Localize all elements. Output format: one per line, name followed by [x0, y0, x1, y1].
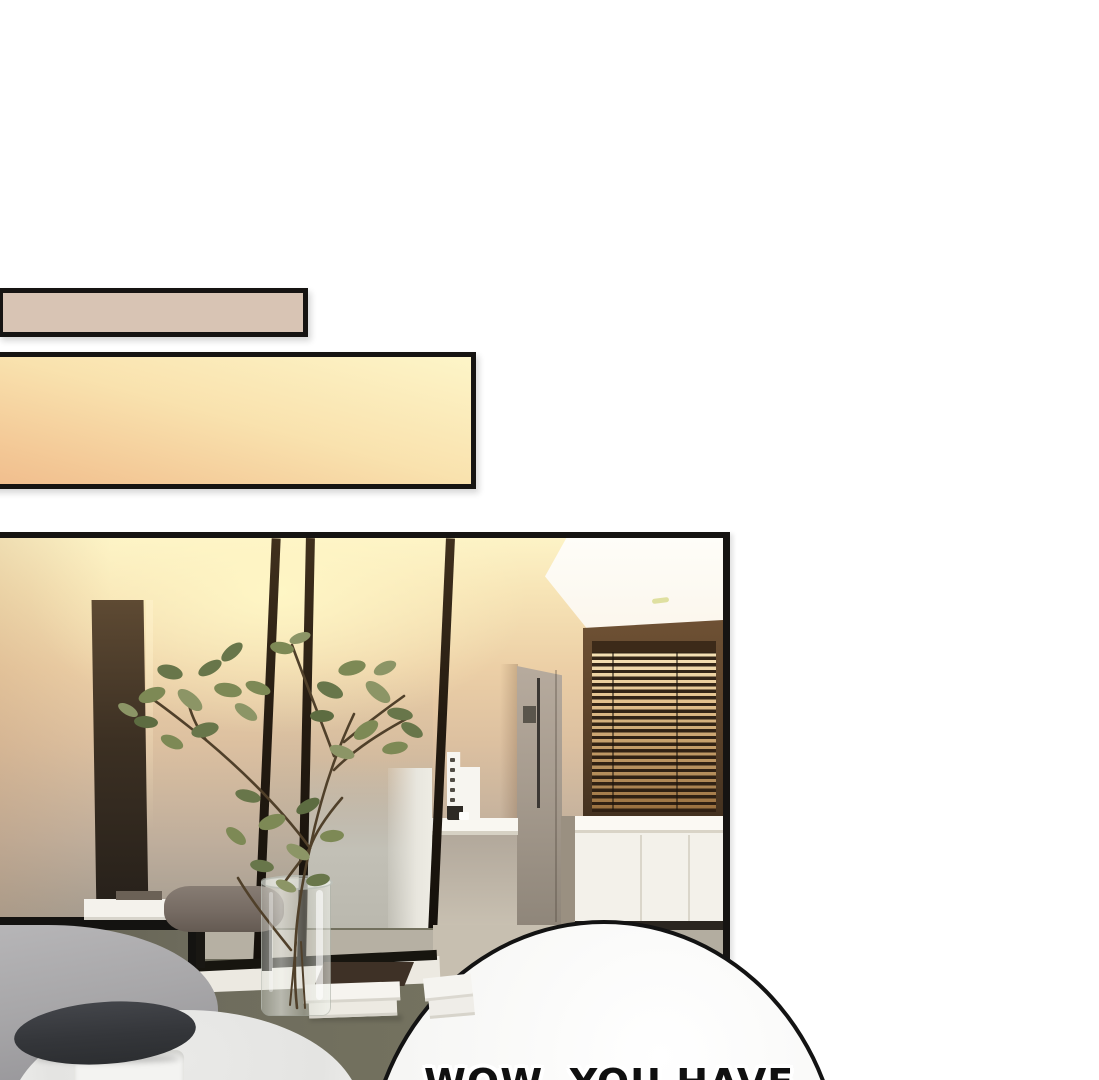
coffee-counter: [429, 818, 518, 835]
coffee-machine-button: [450, 788, 455, 792]
vase-highlight: [269, 892, 273, 992]
cabinet-seam: [640, 835, 642, 921]
panel-scene: [0, 0, 1099, 1080]
coffee-machine-button: [450, 758, 455, 762]
comic-page: WOW, YOU HAVE: [0, 0, 1099, 1080]
refrigerator-handle: [537, 678, 540, 808]
coffee-machine-button: [450, 778, 455, 782]
kitchen-cabinets: [575, 833, 723, 923]
speech-bubble-text: WOW, YOU HAVE: [424, 1064, 804, 1080]
vase-highlight: [316, 890, 323, 1000]
blinds-header: [592, 641, 716, 652]
kitchen-countertop: [575, 816, 723, 833]
window-blinds: [592, 650, 716, 812]
leaves: [116, 630, 425, 896]
coffee-machine-button: [450, 768, 455, 772]
refrigerator-door-seam: [555, 670, 557, 922]
potted-tree: [55, 595, 435, 1025]
refrigerator-shadow: [500, 664, 518, 832]
coffee-machine-button: [450, 798, 455, 802]
narration-box-small: [0, 288, 308, 337]
panel-border-top: [0, 532, 730, 538]
refrigerator-dispenser: [523, 706, 536, 723]
blind-cord: [676, 652, 678, 810]
counter-gap-shadow: [561, 816, 575, 928]
coffee-cup: [459, 812, 469, 820]
cabinet-seam: [688, 835, 690, 921]
blind-cord: [612, 652, 614, 810]
narration-box-large: [0, 352, 476, 489]
coffee-counter-front: [431, 835, 517, 930]
